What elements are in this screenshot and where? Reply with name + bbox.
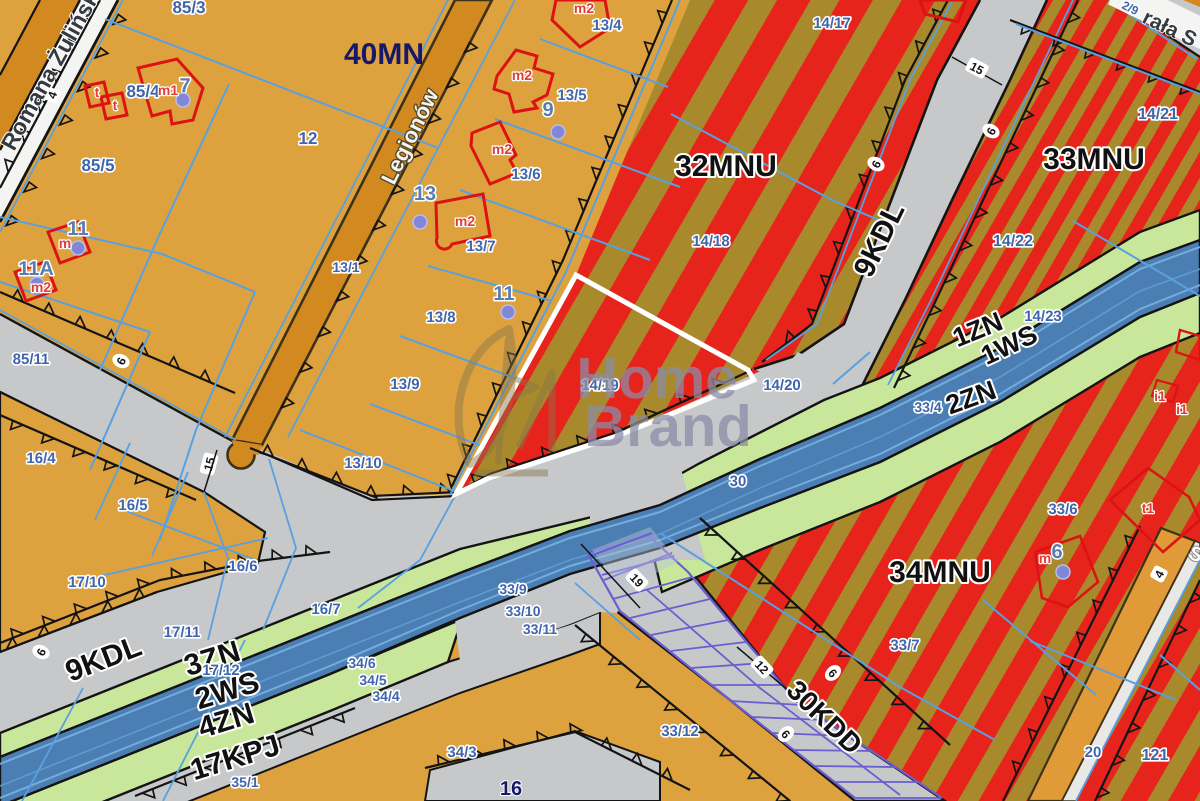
svg-text:33MNU: 33MNU [1043,143,1145,176]
svg-text:17/10: 17/10 [68,574,106,591]
svg-text:85/4: 85/4 [126,82,160,101]
svg-text:33/11: 33/11 [523,621,557,637]
svg-text:14/21: 14/21 [1138,106,1178,123]
svg-text:13/7: 13/7 [466,238,495,255]
svg-text:13/8: 13/8 [426,309,455,326]
svg-text:m: m [1039,550,1051,566]
svg-text:17/11: 17/11 [164,624,201,641]
svg-text:16/7: 16/7 [311,601,340,618]
svg-text:33/7: 33/7 [890,637,919,654]
svg-text:34/4: 34/4 [372,688,399,704]
svg-text:34MNU: 34MNU [889,556,991,589]
svg-text:16/6: 16/6 [228,558,257,575]
svg-text:13/9: 13/9 [390,376,419,393]
svg-text:13/4: 13/4 [592,17,622,34]
svg-text:t: t [113,97,118,113]
svg-text:13/10: 13/10 [344,455,382,472]
svg-text:6: 6 [1051,541,1062,563]
svg-text:13/1: 13/1 [332,259,359,275]
svg-text:14/23: 14/23 [1024,308,1062,325]
svg-text:i1: i1 [1176,401,1188,417]
svg-text:Brand: Brand [584,394,752,459]
svg-text:20: 20 [1085,744,1102,761]
svg-text:13/6: 13/6 [511,166,540,183]
svg-text:m2: m2 [31,279,51,295]
svg-text:t: t [95,84,100,100]
svg-text:16/5: 16/5 [118,497,147,514]
svg-text:14/17: 14/17 [813,15,851,32]
svg-text:m2: m2 [492,141,512,157]
svg-text:m2: m2 [574,0,594,16]
svg-text:9: 9 [542,99,553,121]
svg-text:16: 16 [500,778,522,800]
svg-text:34/6: 34/6 [348,655,375,671]
svg-text:121: 121 [1142,747,1169,764]
svg-text:13/5: 13/5 [557,87,586,104]
svg-text:33/6: 33/6 [1048,501,1077,518]
svg-text:34/5: 34/5 [359,672,386,688]
svg-text:17/12: 17/12 [202,662,240,679]
svg-text:30: 30 [730,473,747,490]
svg-text:33/4: 33/4 [914,399,941,415]
svg-text:m1: m1 [158,82,178,98]
svg-text:16/4: 16/4 [26,450,56,467]
svg-text:35/1: 35/1 [231,774,258,790]
svg-text:13: 13 [414,183,436,205]
svg-text:14/20: 14/20 [763,377,801,394]
svg-text:32MNU: 32MNU [675,150,777,183]
svg-text:85/3: 85/3 [172,0,205,17]
svg-text:m2: m2 [512,67,532,83]
svg-text:85/11: 85/11 [13,351,50,368]
svg-text:34/3: 34/3 [447,744,476,761]
svg-text:t1: t1 [1142,500,1155,516]
svg-text:40MN: 40MN [344,38,424,71]
svg-text:33/9: 33/9 [499,581,526,597]
svg-text:33/12: 33/12 [661,723,699,740]
svg-text:12: 12 [299,129,318,148]
svg-text:11: 11 [493,283,514,305]
svg-text:m2: m2 [455,213,475,229]
svg-text:14/22: 14/22 [993,233,1033,250]
svg-text:m: m [59,235,71,251]
svg-text:33/10: 33/10 [505,603,540,619]
svg-text:14/18: 14/18 [692,233,730,250]
svg-text:i1: i1 [1154,388,1166,404]
svg-text:85/5: 85/5 [81,156,114,175]
